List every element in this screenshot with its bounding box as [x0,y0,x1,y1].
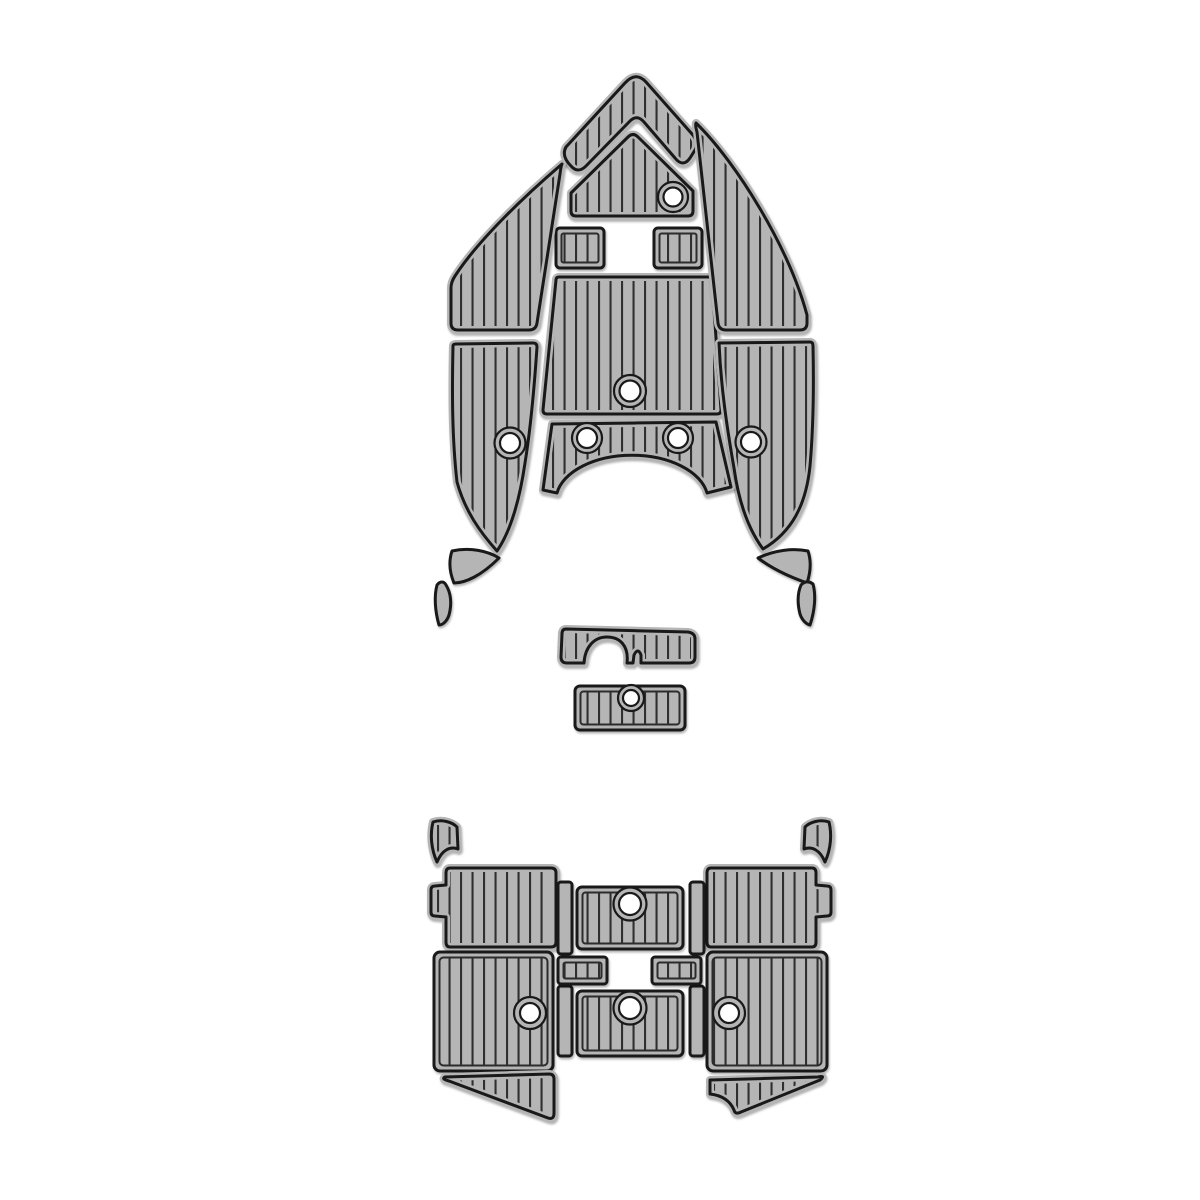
boat-eva-foam-deck-pad-diagram [0,0,1200,1200]
cockpit-port-lower-pad-cutout-hole [514,997,546,1029]
bow-starboard-trim-sliver-2 [798,582,814,625]
bow-center-walkway-pad [543,277,721,414]
console-arch-pad-cutout-hole [572,423,602,453]
seat-base-rect-pad [575,685,685,730]
bow-center-walkway-pad-cutout-hole [614,375,646,407]
bow-port-trim-sliver-2 [435,582,450,625]
cockpit-port-upper-pad [431,868,556,947]
bow-step-pad-starboard [654,228,702,268]
console-arch-pad-cutout-hole [663,423,693,453]
bow-starboard-lower-pad-cutout-hole [736,427,767,458]
seat-base-notched-pad [561,629,695,663]
cockpit-starboard-upper-pad [707,868,831,947]
cockpit-center-lower-pad-cutout-hole [614,992,647,1025]
cockpit-batten-starboard-lower [690,986,704,1056]
hatch-step-pad-starboard [652,957,701,984]
cockpit-center-upper-pad [577,887,683,949]
cockpit-batten-port-lower [558,986,572,1056]
cockpit-port-lower-pad [434,952,553,1071]
bow-anchor-locker-pad-cutout-hole [658,182,688,212]
cockpit-batten-port-upper [558,882,572,954]
cockpit-center-upper-pad-cutout-hole [614,888,647,921]
cockpit-starboard-lower-pad [707,952,827,1071]
bow-step-pad-port [556,228,604,268]
bow-port-lower-pad-cutout-hole [495,428,526,459]
hatch-step-pad-port [558,957,607,984]
deck-pad-layout-svg [0,0,1200,1200]
cockpit-starboard-lower-pad-cutout-hole [713,997,745,1029]
cockpit-center-lower-pad [577,991,683,1056]
cockpit-batten-starboard-upper [690,882,704,954]
seat-base-rect-pad-cutout-hole [618,685,644,711]
